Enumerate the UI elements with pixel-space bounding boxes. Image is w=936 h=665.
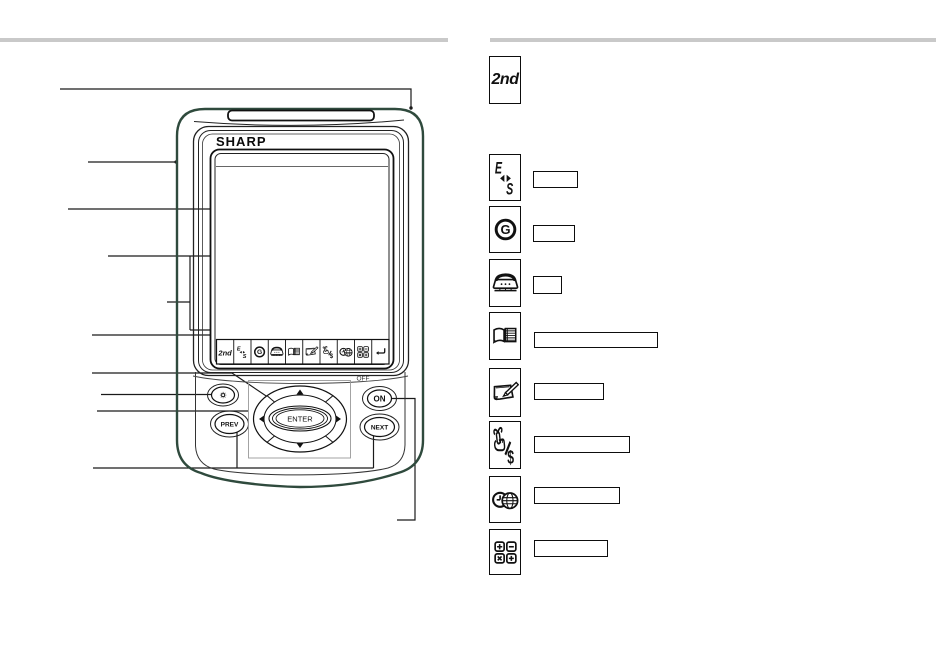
address-book-key-icon — [491, 322, 519, 350]
cursor-pad: ENTER — [249, 381, 351, 459]
2nd-key-icon: 2nd — [492, 71, 519, 89]
hinge-curve — [193, 376, 408, 384]
legend-telephone-box — [489, 259, 521, 307]
legend-calculator-box — [489, 529, 521, 575]
backlight-button — [212, 387, 235, 403]
top-groove — [228, 111, 374, 121]
section-divider-right — [490, 38, 936, 42]
label-box-calculator — [534, 540, 608, 557]
button-area: PREV OFF ON NEXT ENTER — [208, 376, 400, 459]
next-button-label: NEXT — [371, 425, 388, 432]
label-box-schedule-expense — [534, 436, 630, 453]
touch-key-row: 2nd — [217, 340, 390, 365]
2nd-key: 2nd — [217, 349, 232, 358]
manual-page: E S G — [0, 0, 936, 665]
legend-memo-box — [489, 368, 521, 417]
memo-key-icon — [491, 379, 519, 407]
label-box-clock — [533, 225, 575, 242]
display — [211, 150, 394, 369]
callout-top-groove — [60, 89, 411, 107]
label-box-address-book — [534, 332, 658, 348]
legend-2nd-key-box: 2nd — [489, 56, 521, 104]
clock-world-time-key-icon — [491, 486, 519, 514]
legend-clock-box — [489, 206, 521, 253]
enter-button-label: ENTER — [287, 414, 313, 423]
legend-address-book-box — [489, 312, 521, 360]
brand-logo: SHARP — [216, 134, 267, 149]
on-button-label: ON — [374, 395, 386, 404]
telephone-key-icon — [492, 270, 519, 297]
label-box-memo — [534, 383, 604, 400]
clock-key-icon — [492, 216, 519, 243]
label-box-telephone — [533, 276, 562, 294]
legend-schedule-expense-box — [489, 421, 521, 469]
calculator-key-icon — [492, 539, 519, 566]
off-label: OFF — [357, 376, 370, 383]
english-spanish-key-icon — [492, 157, 519, 198]
label-box-english-spanish — [533, 171, 578, 188]
legend-english-spanish-box — [489, 154, 521, 201]
schedule-expense-key-icon — [491, 424, 519, 466]
label-box-clock-world — [534, 487, 620, 504]
device-illustration: SHARP 2nd — [0, 0, 468, 665]
prev-button-label: PREV — [221, 422, 239, 429]
legend-clock-world-box — [489, 476, 521, 523]
